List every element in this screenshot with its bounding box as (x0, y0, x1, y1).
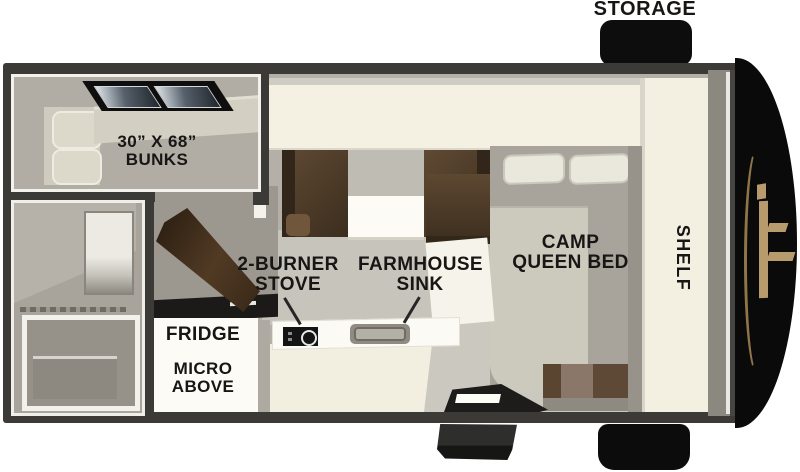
micro-label-line1: MICRO (148, 360, 258, 378)
shelf-label: SHELF (672, 208, 692, 308)
bunk-room: 30” X 68” BUNKS (11, 74, 261, 192)
bed-foot-cushion (593, 364, 631, 400)
sink-basin (354, 327, 406, 341)
shower-curtain-rail (20, 307, 126, 312)
fridge-label: FRIDGE (148, 325, 258, 345)
bed-side-rail (628, 146, 642, 412)
stove-label-line2: STOVE (228, 275, 348, 295)
bunks-text: BUNKS (72, 151, 242, 169)
bedside-cabinet (426, 174, 490, 244)
wet-bath (11, 200, 145, 416)
kitchen-counter-front (250, 344, 432, 412)
bed-label-line2: QUEEN BED (498, 253, 643, 273)
overhead-cabinet (262, 85, 648, 150)
bed-label-line1: CAMP (498, 233, 643, 253)
bed-pillow (569, 153, 630, 185)
brand-logo (757, 183, 766, 200)
bed-shadow (543, 398, 631, 411)
stove-knob (288, 332, 292, 335)
bed-foot-cushion (561, 364, 593, 400)
dinette-seat-left-cushion (286, 214, 310, 236)
cabinet-gap (258, 320, 270, 412)
stove-knob (288, 338, 292, 341)
skylight (82, 81, 233, 111)
bed-label: CAMP QUEEN BED (498, 233, 643, 273)
exterior-storage-box (598, 424, 690, 470)
stove-label-line1: 2-BURNER (228, 255, 348, 275)
brand-logo (767, 252, 796, 261)
dinette-backrest (348, 150, 424, 198)
bed-pillow (503, 153, 565, 185)
camper-floorplan: STORAGE (0, 0, 800, 472)
entry-step-tread (455, 394, 501, 403)
brand-logo (767, 223, 789, 232)
tub-ledge (33, 356, 117, 399)
dinette-table (348, 196, 424, 240)
exterior-storage-compartment (600, 20, 692, 66)
stove-label: 2-BURNER STOVE (228, 255, 348, 295)
exterior-entry-step (437, 424, 517, 460)
skylight-pane (154, 86, 222, 108)
micro-label-line2: ABOVE (148, 378, 258, 396)
bath-mirror (84, 211, 134, 295)
bunks-label: 30” X 68” BUNKS (72, 133, 242, 169)
brand-logo (759, 201, 768, 298)
bunks-dimensions-text: 30” X 68” (72, 133, 242, 151)
micro-label: MICRO ABOVE (148, 360, 258, 395)
stove-burner (301, 330, 317, 346)
shower-pan (22, 315, 140, 411)
sink-label-line1: FARMHOUSE (358, 255, 482, 275)
storage-label: STORAGE (570, 0, 720, 20)
skylight-pane (94, 86, 162, 108)
bed-foot-cushion (543, 364, 561, 400)
sink-label: FARMHOUSE SINK (358, 255, 482, 295)
sink-label-line2: SINK (358, 275, 482, 295)
